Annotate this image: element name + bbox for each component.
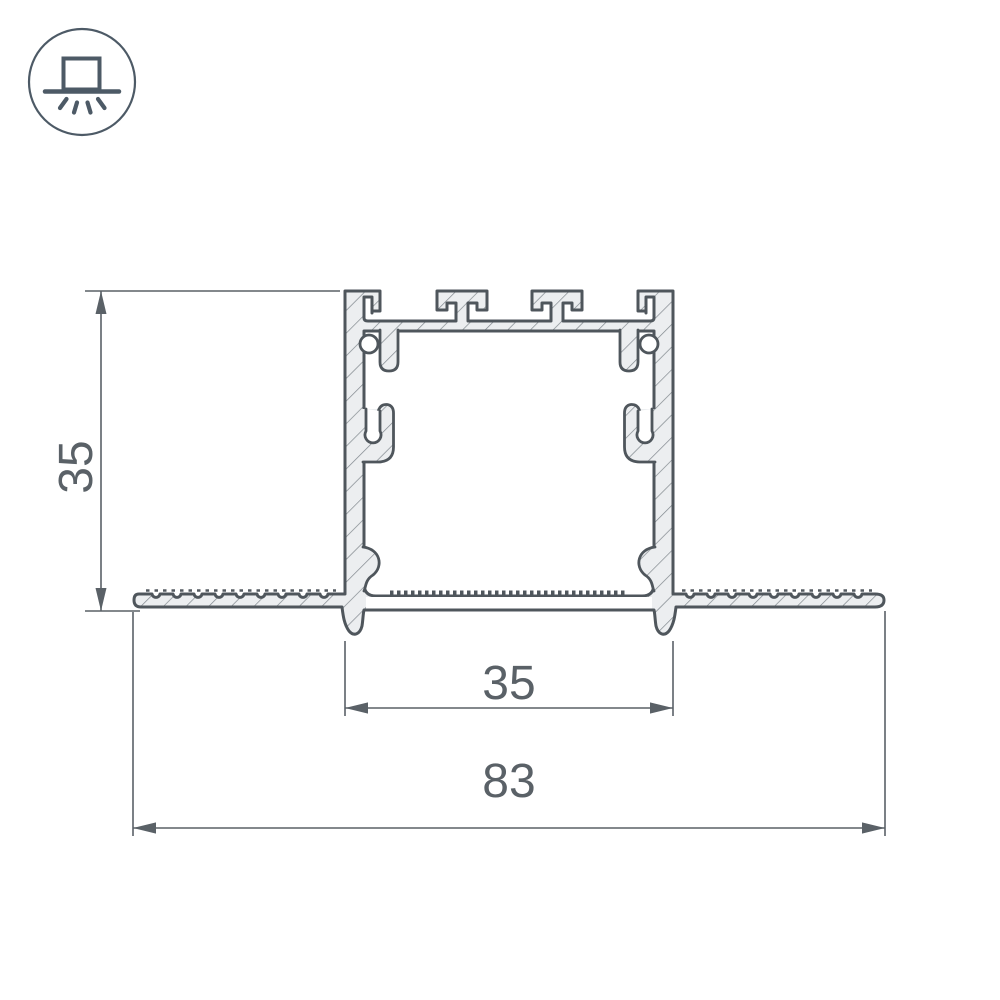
screw-port	[640, 335, 658, 353]
lower-screw-boss-right	[624, 404, 658, 463]
dimension-recess-width: 35	[345, 641, 673, 716]
profile-drawing: 35 35 83	[0, 0, 1000, 1000]
lower-screw-boss-left	[360, 404, 394, 463]
dimension-overall-width: 83	[133, 611, 885, 836]
arrowhead-left	[345, 702, 368, 713]
arrowhead-right	[862, 822, 885, 833]
icon-lamp-box	[64, 59, 100, 90]
left-arm-slot	[364, 297, 372, 313]
right-arm-slot	[646, 297, 654, 313]
technical-drawing-page: 35 35 83	[0, 0, 1000, 1000]
recessed-light-icon	[29, 29, 135, 135]
dimension-label: 83	[482, 755, 535, 808]
dimension-label: 35	[50, 440, 103, 493]
icon-circle	[29, 29, 135, 135]
screw-port	[637, 409, 653, 443]
profile-cross-section	[134, 291, 884, 634]
dimension-profile-height: 35	[50, 291, 340, 611]
screw-port	[365, 409, 381, 443]
inner-cavity	[364, 331, 654, 596]
arrowhead-left	[133, 822, 156, 833]
floor-slab	[366, 597, 652, 609]
arrowhead-down	[96, 588, 107, 611]
screw-port	[360, 335, 378, 353]
dimension-label: 35	[482, 657, 535, 710]
icon-light-rays	[60, 99, 105, 113]
arrowhead-right	[650, 702, 673, 713]
arrowhead-up	[96, 291, 107, 314]
